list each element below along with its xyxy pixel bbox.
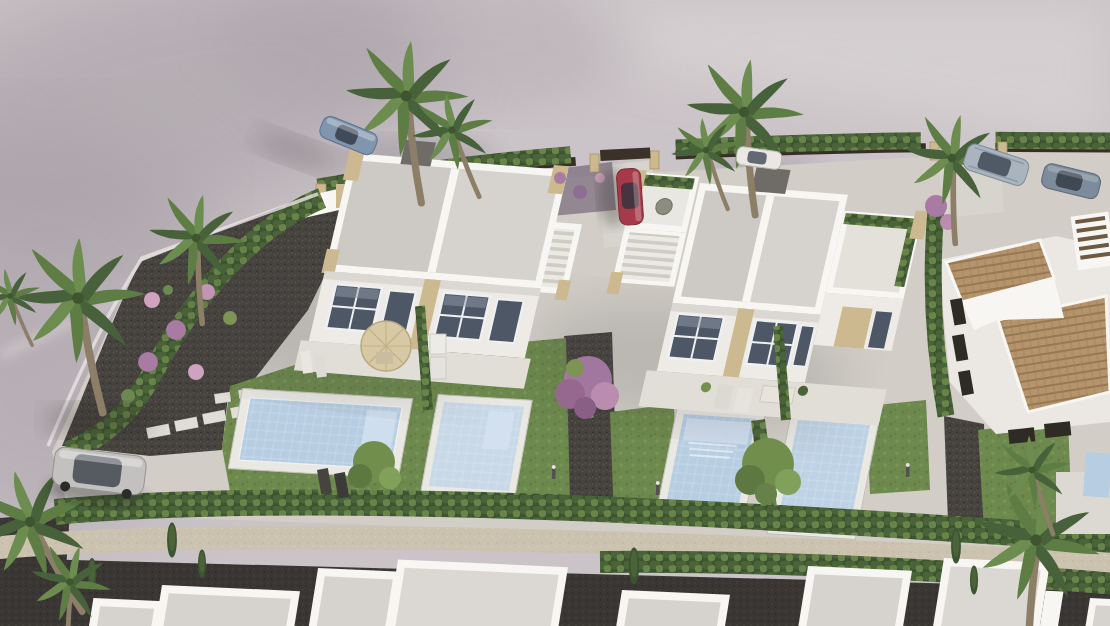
bottom-house-4 [796,566,912,626]
outdoor-kitchen [430,334,446,354]
terrace-table [376,352,393,364]
roof-stairs [619,232,680,282]
bottom-house-3 [614,590,730,626]
scene-render [0,0,1110,626]
window [434,293,490,341]
render-stage [0,0,1110,626]
outdoor-sofa [760,386,796,405]
pool-left-small [421,395,533,499]
window [668,314,724,362]
outdoor-cabinet [430,357,446,379]
pool-neighbour-corner [1083,452,1110,498]
chimney [751,167,791,194]
